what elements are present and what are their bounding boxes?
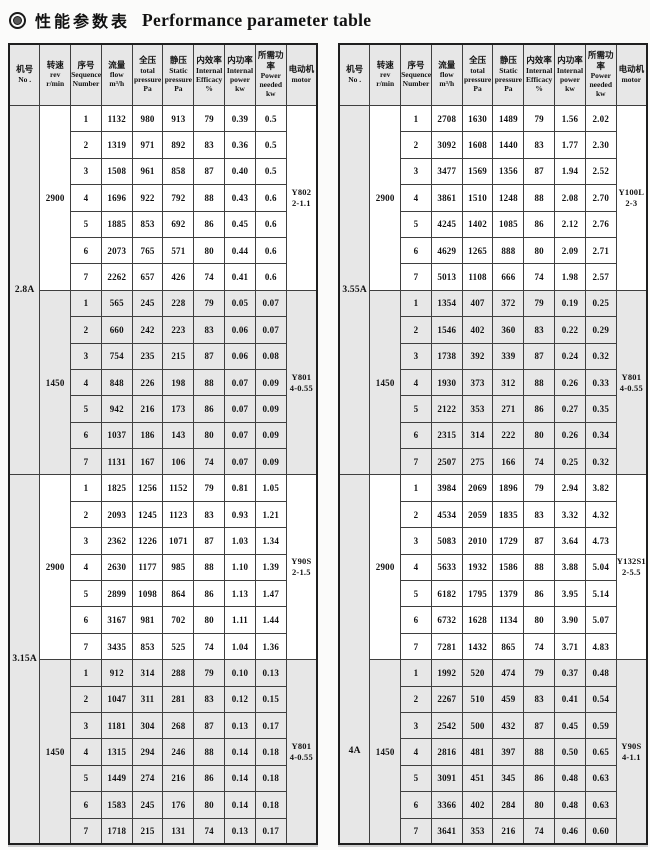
data-cell: 0.14 xyxy=(225,765,256,791)
data-cell: 0.43 xyxy=(225,185,256,211)
data-cell: 0.41 xyxy=(225,264,256,290)
motor-cell: Y801 4-0.55 xyxy=(286,290,317,475)
data-cell: 1.34 xyxy=(255,528,286,554)
col-header-en: flow m³/h xyxy=(432,71,462,89)
data-cell: 1932 xyxy=(462,554,493,580)
rpm-cell: 2900 xyxy=(40,475,71,660)
data-cell: 173 xyxy=(163,396,194,422)
col-header-en: motor xyxy=(617,76,646,85)
data-cell: 0.46 xyxy=(555,818,586,844)
data-cell: 0.29 xyxy=(585,317,616,343)
data-cell: 7 xyxy=(71,818,102,844)
data-cell: 314 xyxy=(462,422,493,448)
data-cell: 0.5 xyxy=(255,158,286,184)
motor-cell: Y801 4-0.55 xyxy=(286,660,317,845)
data-cell: 83 xyxy=(524,132,555,158)
data-cell: 1 xyxy=(71,290,102,316)
data-cell: 426 xyxy=(163,264,194,290)
data-cell: 167 xyxy=(132,449,163,475)
data-cell: 74 xyxy=(524,818,555,844)
data-cell: 7 xyxy=(401,264,432,290)
data-cell: 848 xyxy=(101,369,132,395)
data-cell: 5633 xyxy=(431,554,462,580)
data-cell: 1071 xyxy=(163,528,194,554)
data-cell: 1265 xyxy=(462,237,493,263)
rpm-cell: 1450 xyxy=(370,660,401,845)
data-cell: 373 xyxy=(462,369,493,395)
data-cell: 1356 xyxy=(493,158,524,184)
data-cell: 2315 xyxy=(431,422,462,448)
data-cell: 1402 xyxy=(462,211,493,237)
data-cell: 2542 xyxy=(431,712,462,738)
data-cell: 0.26 xyxy=(555,369,586,395)
data-cell: 228 xyxy=(163,290,194,316)
data-cell: 3.82 xyxy=(585,475,616,501)
data-cell: 0.18 xyxy=(255,739,286,765)
data-cell: 86 xyxy=(194,211,225,237)
data-cell: 4 xyxy=(401,369,432,395)
data-cell: 1508 xyxy=(101,158,132,184)
data-cell: 1108 xyxy=(462,264,493,290)
data-cell: 1.56 xyxy=(555,106,586,132)
col-header-0: 机号No . xyxy=(9,44,40,106)
data-cell: 1440 xyxy=(493,132,524,158)
data-cell: 0.44 xyxy=(225,237,256,263)
data-cell: 0.06 xyxy=(225,343,256,369)
col-header-6: 内效率Internal Efficacy % xyxy=(194,44,225,106)
data-cell: 83 xyxy=(194,132,225,158)
col-header-en: No . xyxy=(340,76,369,85)
data-cell: 0.07 xyxy=(225,422,256,448)
data-cell: 1992 xyxy=(431,660,462,686)
data-cell: 0.63 xyxy=(585,765,616,791)
data-cell: 2 xyxy=(71,686,102,712)
data-cell: 79 xyxy=(524,660,555,686)
data-cell: 275 xyxy=(462,449,493,475)
col-header-en: Internal Efficacy % xyxy=(524,67,554,94)
data-cell: 525 xyxy=(163,633,194,659)
data-cell: 1696 xyxy=(101,185,132,211)
data-cell: 971 xyxy=(132,132,163,158)
data-cell: 0.10 xyxy=(225,660,256,686)
data-cell: 0.59 xyxy=(585,712,616,738)
data-cell: 888 xyxy=(493,237,524,263)
col-header-zh: 所需功率 xyxy=(256,51,286,72)
data-cell: 143 xyxy=(163,422,194,448)
table-row: 14501565245228790.050.07Y801 4-0.55 xyxy=(9,290,317,316)
data-cell: 0.54 xyxy=(585,686,616,712)
data-cell: 6 xyxy=(71,792,102,818)
col-header-en: Power needed kw xyxy=(586,72,616,99)
data-cell: 0.6 xyxy=(255,237,286,263)
motor-cell: Y802 2-1.1 xyxy=(286,106,317,291)
data-cell: 2 xyxy=(401,686,432,712)
data-cell: 353 xyxy=(462,818,493,844)
data-cell: 1 xyxy=(401,290,432,316)
data-cell: 0.65 xyxy=(585,739,616,765)
data-cell: 4 xyxy=(71,185,102,211)
data-cell: 87 xyxy=(194,343,225,369)
data-cell: 80 xyxy=(194,422,225,448)
data-cell: 0.81 xyxy=(225,475,256,501)
data-cell: 222 xyxy=(493,422,524,448)
data-cell: 2630 xyxy=(101,554,132,580)
data-cell: 79 xyxy=(524,475,555,501)
machine-no-label: 3.15A xyxy=(10,654,39,664)
data-cell: 1583 xyxy=(101,792,132,818)
data-cell: 312 xyxy=(493,369,524,395)
data-cell: 215 xyxy=(163,343,194,369)
data-cell: 83 xyxy=(194,686,225,712)
data-cell: 0.27 xyxy=(555,396,586,422)
data-cell: 0.13 xyxy=(225,712,256,738)
data-cell: 1738 xyxy=(431,343,462,369)
data-cell: 288 xyxy=(163,660,194,686)
data-cell: 2093 xyxy=(101,501,132,527)
data-cell: 2.94 xyxy=(555,475,586,501)
data-cell: 4.32 xyxy=(585,501,616,527)
data-cell: 0.07 xyxy=(255,317,286,343)
data-cell: 360 xyxy=(493,317,524,343)
data-cell: 311 xyxy=(132,686,163,712)
data-cell: 0.37 xyxy=(555,660,586,686)
data-cell: 74 xyxy=(194,633,225,659)
data-cell: 1825 xyxy=(101,475,132,501)
data-cell: 0.33 xyxy=(585,369,616,395)
data-cell: 3 xyxy=(71,528,102,554)
performance-table-left: 机号No .转速rev r/min序号Sequence Number流量flow… xyxy=(8,43,318,845)
data-cell: 0.25 xyxy=(585,290,616,316)
data-cell: 2.09 xyxy=(555,237,586,263)
data-cell: 865 xyxy=(493,633,524,659)
data-cell: 88 xyxy=(524,739,555,765)
col-header-5: 静压Static pressure Pa xyxy=(163,44,194,106)
data-cell: 1.13 xyxy=(225,581,256,607)
catalog-page: 性能参数表 Performance parameter table 机号No .… xyxy=(0,0,650,850)
table-row: 2.8A290011132980913790.390.5Y802 2-1.1 xyxy=(9,106,317,132)
rpm-cell: 1450 xyxy=(40,290,71,475)
col-header-4: 全压total pressure Pa xyxy=(132,44,163,106)
data-cell: 353 xyxy=(462,396,493,422)
data-cell: 985 xyxy=(163,554,194,580)
data-cell: 186 xyxy=(132,422,163,448)
data-cell: 216 xyxy=(132,396,163,422)
col-header-en: total pressure Pa xyxy=(133,67,163,94)
data-cell: 1 xyxy=(401,660,432,686)
data-cell: 0.50 xyxy=(555,739,586,765)
col-header-8: 所需功率Power needed kw xyxy=(255,44,286,106)
data-cell: 500 xyxy=(462,712,493,738)
data-cell: 7 xyxy=(401,449,432,475)
data-cell: 79 xyxy=(524,290,555,316)
data-cell: 74 xyxy=(194,449,225,475)
data-cell: 3984 xyxy=(431,475,462,501)
data-cell: 2262 xyxy=(101,264,132,290)
data-cell: 6 xyxy=(401,607,432,633)
data-cell: 3091 xyxy=(431,765,462,791)
col-header-1: 转速rev r/min xyxy=(40,44,71,106)
data-cell: 1.21 xyxy=(255,501,286,527)
data-cell: 3 xyxy=(71,343,102,369)
data-cell: 6 xyxy=(401,237,432,263)
machine-no-label: 4A xyxy=(340,746,369,756)
data-cell: 345 xyxy=(493,765,524,791)
data-cell: 87 xyxy=(194,528,225,554)
data-cell: 74 xyxy=(524,264,555,290)
col-header-en: flow m³/h xyxy=(102,71,132,89)
data-cell: 2010 xyxy=(462,528,493,554)
data-cell: 86 xyxy=(194,765,225,791)
data-cell: 131 xyxy=(163,818,194,844)
data-cell: 1131 xyxy=(101,449,132,475)
col-header-6: 内效率Internal Efficacy % xyxy=(524,44,555,106)
data-cell: 565 xyxy=(101,290,132,316)
col-header-3: 流量flow m³/h xyxy=(101,44,132,106)
data-cell: 2816 xyxy=(431,739,462,765)
data-cell: 80 xyxy=(524,792,555,818)
data-cell: 5 xyxy=(401,211,432,237)
data-cell: 1.11 xyxy=(225,607,256,633)
data-cell: 657 xyxy=(132,264,163,290)
data-cell: 2122 xyxy=(431,396,462,422)
data-cell: 88 xyxy=(524,554,555,580)
col-header-4: 全压total pressure Pa xyxy=(462,44,493,106)
data-cell: 520 xyxy=(462,660,493,686)
data-cell: 2 xyxy=(71,501,102,527)
data-cell: 87 xyxy=(524,343,555,369)
data-cell: 83 xyxy=(194,317,225,343)
col-header-9: 电动机motor xyxy=(286,44,317,106)
data-cell: 2362 xyxy=(101,528,132,554)
data-cell: 5083 xyxy=(431,528,462,554)
data-cell: 1134 xyxy=(493,607,524,633)
data-cell: 474 xyxy=(493,660,524,686)
data-cell: 2.02 xyxy=(585,106,616,132)
data-cell: 3.32 xyxy=(555,501,586,527)
data-cell: 0.14 xyxy=(225,792,256,818)
data-cell: 510 xyxy=(462,686,493,712)
data-cell: 7 xyxy=(71,264,102,290)
data-cell: 1354 xyxy=(431,290,462,316)
rpm-cell: 2900 xyxy=(370,106,401,291)
col-header-en: Sequence Number xyxy=(401,71,431,89)
data-cell: 0.34 xyxy=(585,422,616,448)
data-cell: 1319 xyxy=(101,132,132,158)
data-cell: 86 xyxy=(524,765,555,791)
data-cell: 216 xyxy=(163,765,194,791)
table-row: 145011354407372790.190.25Y801 4-0.55 xyxy=(339,290,647,316)
data-cell: 88 xyxy=(524,185,555,211)
data-cell: 6732 xyxy=(431,607,462,633)
data-cell: 892 xyxy=(163,132,194,158)
data-cell: 0.09 xyxy=(255,369,286,395)
data-cell: 1.03 xyxy=(225,528,256,554)
performance-table-right: 机号No .转速rev r/min序号Sequence Number流量flow… xyxy=(338,43,648,845)
data-cell: 5 xyxy=(401,396,432,422)
data-cell: 4629 xyxy=(431,237,462,263)
data-cell: 6 xyxy=(401,792,432,818)
data-cell: 1.05 xyxy=(255,475,286,501)
data-cell: 2 xyxy=(71,132,102,158)
data-cell: 83 xyxy=(524,317,555,343)
col-header-en: Internal Efficacy % xyxy=(194,67,224,94)
data-cell: 961 xyxy=(132,158,163,184)
data-cell: 3092 xyxy=(431,132,462,158)
data-cell: 1.39 xyxy=(255,554,286,580)
motor-cell: Y90S 2-1.5 xyxy=(286,475,317,660)
data-cell: 3641 xyxy=(431,818,462,844)
data-cell: 1630 xyxy=(462,106,493,132)
data-cell: 1608 xyxy=(462,132,493,158)
machine-no-label: 3.55A xyxy=(340,285,369,295)
data-cell: 5.04 xyxy=(585,554,616,580)
data-cell: 0.15 xyxy=(255,686,286,712)
data-cell: 0.13 xyxy=(255,660,286,686)
data-cell: 1379 xyxy=(493,581,524,607)
data-cell: 0.5 xyxy=(255,132,286,158)
data-cell: 2.08 xyxy=(555,185,586,211)
data-cell: 2507 xyxy=(431,449,462,475)
col-header-0: 机号No . xyxy=(339,44,370,106)
data-cell: 274 xyxy=(132,765,163,791)
table-row: 145011992520474790.370.48Y90S 4-1.1 xyxy=(339,660,647,686)
data-cell: 2.70 xyxy=(585,185,616,211)
col-header-en: total pressure Pa xyxy=(463,67,493,94)
data-cell: 5.07 xyxy=(585,607,616,633)
rpm-cell: 1450 xyxy=(370,290,401,475)
tables-row: 机号No .转速rev r/min序号Sequence Number流量flow… xyxy=(8,43,642,845)
data-cell: 3 xyxy=(401,343,432,369)
data-cell: 0.14 xyxy=(225,739,256,765)
data-cell: 0.41 xyxy=(555,686,586,712)
data-cell: 4534 xyxy=(431,501,462,527)
data-cell: 86 xyxy=(524,396,555,422)
data-cell: 1047 xyxy=(101,686,132,712)
data-cell: 5013 xyxy=(431,264,462,290)
data-cell: 0.5 xyxy=(255,106,286,132)
data-cell: 5 xyxy=(401,765,432,791)
title-chinese: 性能参数表 xyxy=(35,8,130,32)
data-cell: 0.18 xyxy=(255,792,286,818)
motor-cell: Y132S1 2-5.5 xyxy=(616,475,647,660)
data-cell: 80 xyxy=(524,237,555,263)
data-cell: 339 xyxy=(493,343,524,369)
data-cell: 83 xyxy=(194,501,225,527)
data-cell: 223 xyxy=(163,317,194,343)
data-cell: 5 xyxy=(71,396,102,422)
data-cell: 88 xyxy=(194,554,225,580)
data-cell: 2.71 xyxy=(585,237,616,263)
data-cell: 0.24 xyxy=(555,343,586,369)
data-cell: 1628 xyxy=(462,607,493,633)
table-row: 3.55A29001270816301489791.562.02Y100L 2-… xyxy=(339,106,647,132)
data-cell: 1037 xyxy=(101,422,132,448)
data-cell: 2069 xyxy=(462,475,493,501)
data-cell: 1432 xyxy=(462,633,493,659)
col-header-en: rev r/min xyxy=(40,71,70,89)
data-cell: 1.98 xyxy=(555,264,586,290)
col-header-5: 静压Static pressure Pa xyxy=(493,44,524,106)
data-cell: 660 xyxy=(101,317,132,343)
data-cell: 2.76 xyxy=(585,211,616,237)
header-row: 机号No .转速rev r/min序号Sequence Number流量flow… xyxy=(9,44,317,106)
machine-no-cell: 3.55A xyxy=(339,106,370,475)
data-cell: 792 xyxy=(163,185,194,211)
data-cell: 0.48 xyxy=(555,765,586,791)
data-cell: 1315 xyxy=(101,739,132,765)
motor-cell: Y801 4-0.55 xyxy=(616,290,647,475)
table-row: 14501912314288790.100.13Y801 4-0.55 xyxy=(9,660,317,686)
data-cell: 86 xyxy=(194,581,225,607)
data-cell: 1510 xyxy=(462,185,493,211)
data-cell: 913 xyxy=(163,106,194,132)
data-cell: 87 xyxy=(194,158,225,184)
data-cell: 3.95 xyxy=(555,581,586,607)
data-cell: 80 xyxy=(194,792,225,818)
data-cell: 0.12 xyxy=(225,686,256,712)
data-cell: 87 xyxy=(524,712,555,738)
data-cell: 3861 xyxy=(431,185,462,211)
data-cell: 88 xyxy=(194,369,225,395)
data-cell: 0.07 xyxy=(225,449,256,475)
data-cell: 215 xyxy=(132,818,163,844)
data-cell: 3 xyxy=(71,158,102,184)
data-cell: 80 xyxy=(194,607,225,633)
data-cell: 754 xyxy=(101,343,132,369)
data-cell: 245 xyxy=(132,290,163,316)
data-cell: 0.63 xyxy=(585,792,616,818)
data-cell: 1930 xyxy=(431,369,462,395)
data-cell: 5 xyxy=(401,581,432,607)
data-cell: 6 xyxy=(401,422,432,448)
table-row: 3.15A29001182512561152790.811.05Y90S 2-1… xyxy=(9,475,317,501)
page-title: 性能参数表 Performance parameter table xyxy=(9,8,642,32)
data-cell: 1.47 xyxy=(255,581,286,607)
data-cell: 4 xyxy=(401,185,432,211)
data-cell: 981 xyxy=(132,607,163,633)
data-cell: 402 xyxy=(462,317,493,343)
data-cell: 314 xyxy=(132,660,163,686)
data-cell: 79 xyxy=(194,106,225,132)
data-cell: 1586 xyxy=(493,554,524,580)
data-cell: 88 xyxy=(524,369,555,395)
data-cell: 271 xyxy=(493,396,524,422)
data-cell: 0.18 xyxy=(255,765,286,791)
data-cell: 3366 xyxy=(431,792,462,818)
data-cell: 86 xyxy=(524,211,555,237)
data-cell: 0.39 xyxy=(225,106,256,132)
data-cell: 4245 xyxy=(431,211,462,237)
data-cell: 7 xyxy=(401,633,432,659)
col-header-1: 转速rev r/min xyxy=(370,44,401,106)
data-cell: 4 xyxy=(401,739,432,765)
col-header-en: Power needed kw xyxy=(256,72,286,99)
data-cell: 1245 xyxy=(132,501,163,527)
header-row: 机号No .转速rev r/min序号Sequence Number流量flow… xyxy=(339,44,647,106)
data-cell: 3 xyxy=(401,528,432,554)
data-cell: 481 xyxy=(462,739,493,765)
data-cell: 3477 xyxy=(431,158,462,184)
data-cell: 4 xyxy=(71,739,102,765)
motor-cell: Y100L 2-3 xyxy=(616,106,647,291)
col-header-7: 内功率Internal power kw xyxy=(555,44,586,106)
data-cell: 0.07 xyxy=(225,369,256,395)
col-header-en: rev r/min xyxy=(370,71,400,89)
data-cell: 74 xyxy=(194,264,225,290)
data-cell: 922 xyxy=(132,185,163,211)
data-cell: 294 xyxy=(132,739,163,765)
data-cell: 0.19 xyxy=(555,290,586,316)
